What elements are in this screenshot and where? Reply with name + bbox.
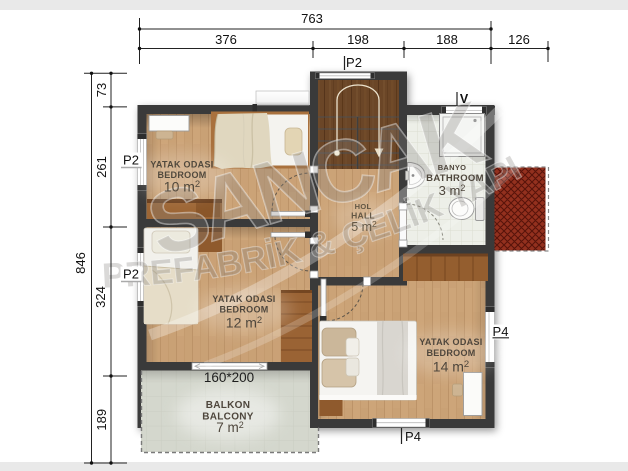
svg-text:10 m2: 10 m2 — [164, 179, 200, 195]
svg-text:YATAK ODASI: YATAK ODASI — [419, 337, 482, 347]
svg-text:P2: P2 — [123, 267, 139, 282]
svg-text:324: 324 — [93, 286, 108, 308]
svg-text:V: V — [460, 92, 469, 106]
svg-text:YATAK ODASI: YATAK ODASI — [212, 294, 275, 304]
svg-text:BEDROOM: BEDROOM — [219, 305, 268, 315]
svg-text:160*200: 160*200 — [204, 370, 254, 385]
svg-text:BALKON: BALKON — [206, 400, 251, 411]
svg-text:YATAK ODASI: YATAK ODASI — [150, 160, 213, 170]
svg-text:763: 763 — [301, 11, 323, 26]
svg-text:376: 376 — [215, 32, 237, 47]
svg-text:126: 126 — [508, 32, 530, 47]
svg-text:73: 73 — [94, 83, 109, 97]
svg-text:BANYO: BANYO — [438, 163, 467, 172]
svg-text:846: 846 — [73, 252, 88, 274]
svg-text:P2: P2 — [123, 153, 139, 168]
svg-text:198: 198 — [347, 32, 369, 47]
svg-text:P4: P4 — [493, 324, 509, 339]
svg-text:P2: P2 — [346, 55, 362, 70]
svg-text:189: 189 — [94, 409, 109, 431]
svg-text:P4: P4 — [405, 429, 421, 444]
svg-text:12 m2: 12 m2 — [226, 315, 262, 331]
svg-text:261: 261 — [94, 156, 109, 178]
svg-text:BEDROOM: BEDROOM — [426, 348, 475, 358]
svg-text:14 m2: 14 m2 — [433, 359, 469, 375]
svg-text:188: 188 — [436, 32, 458, 47]
